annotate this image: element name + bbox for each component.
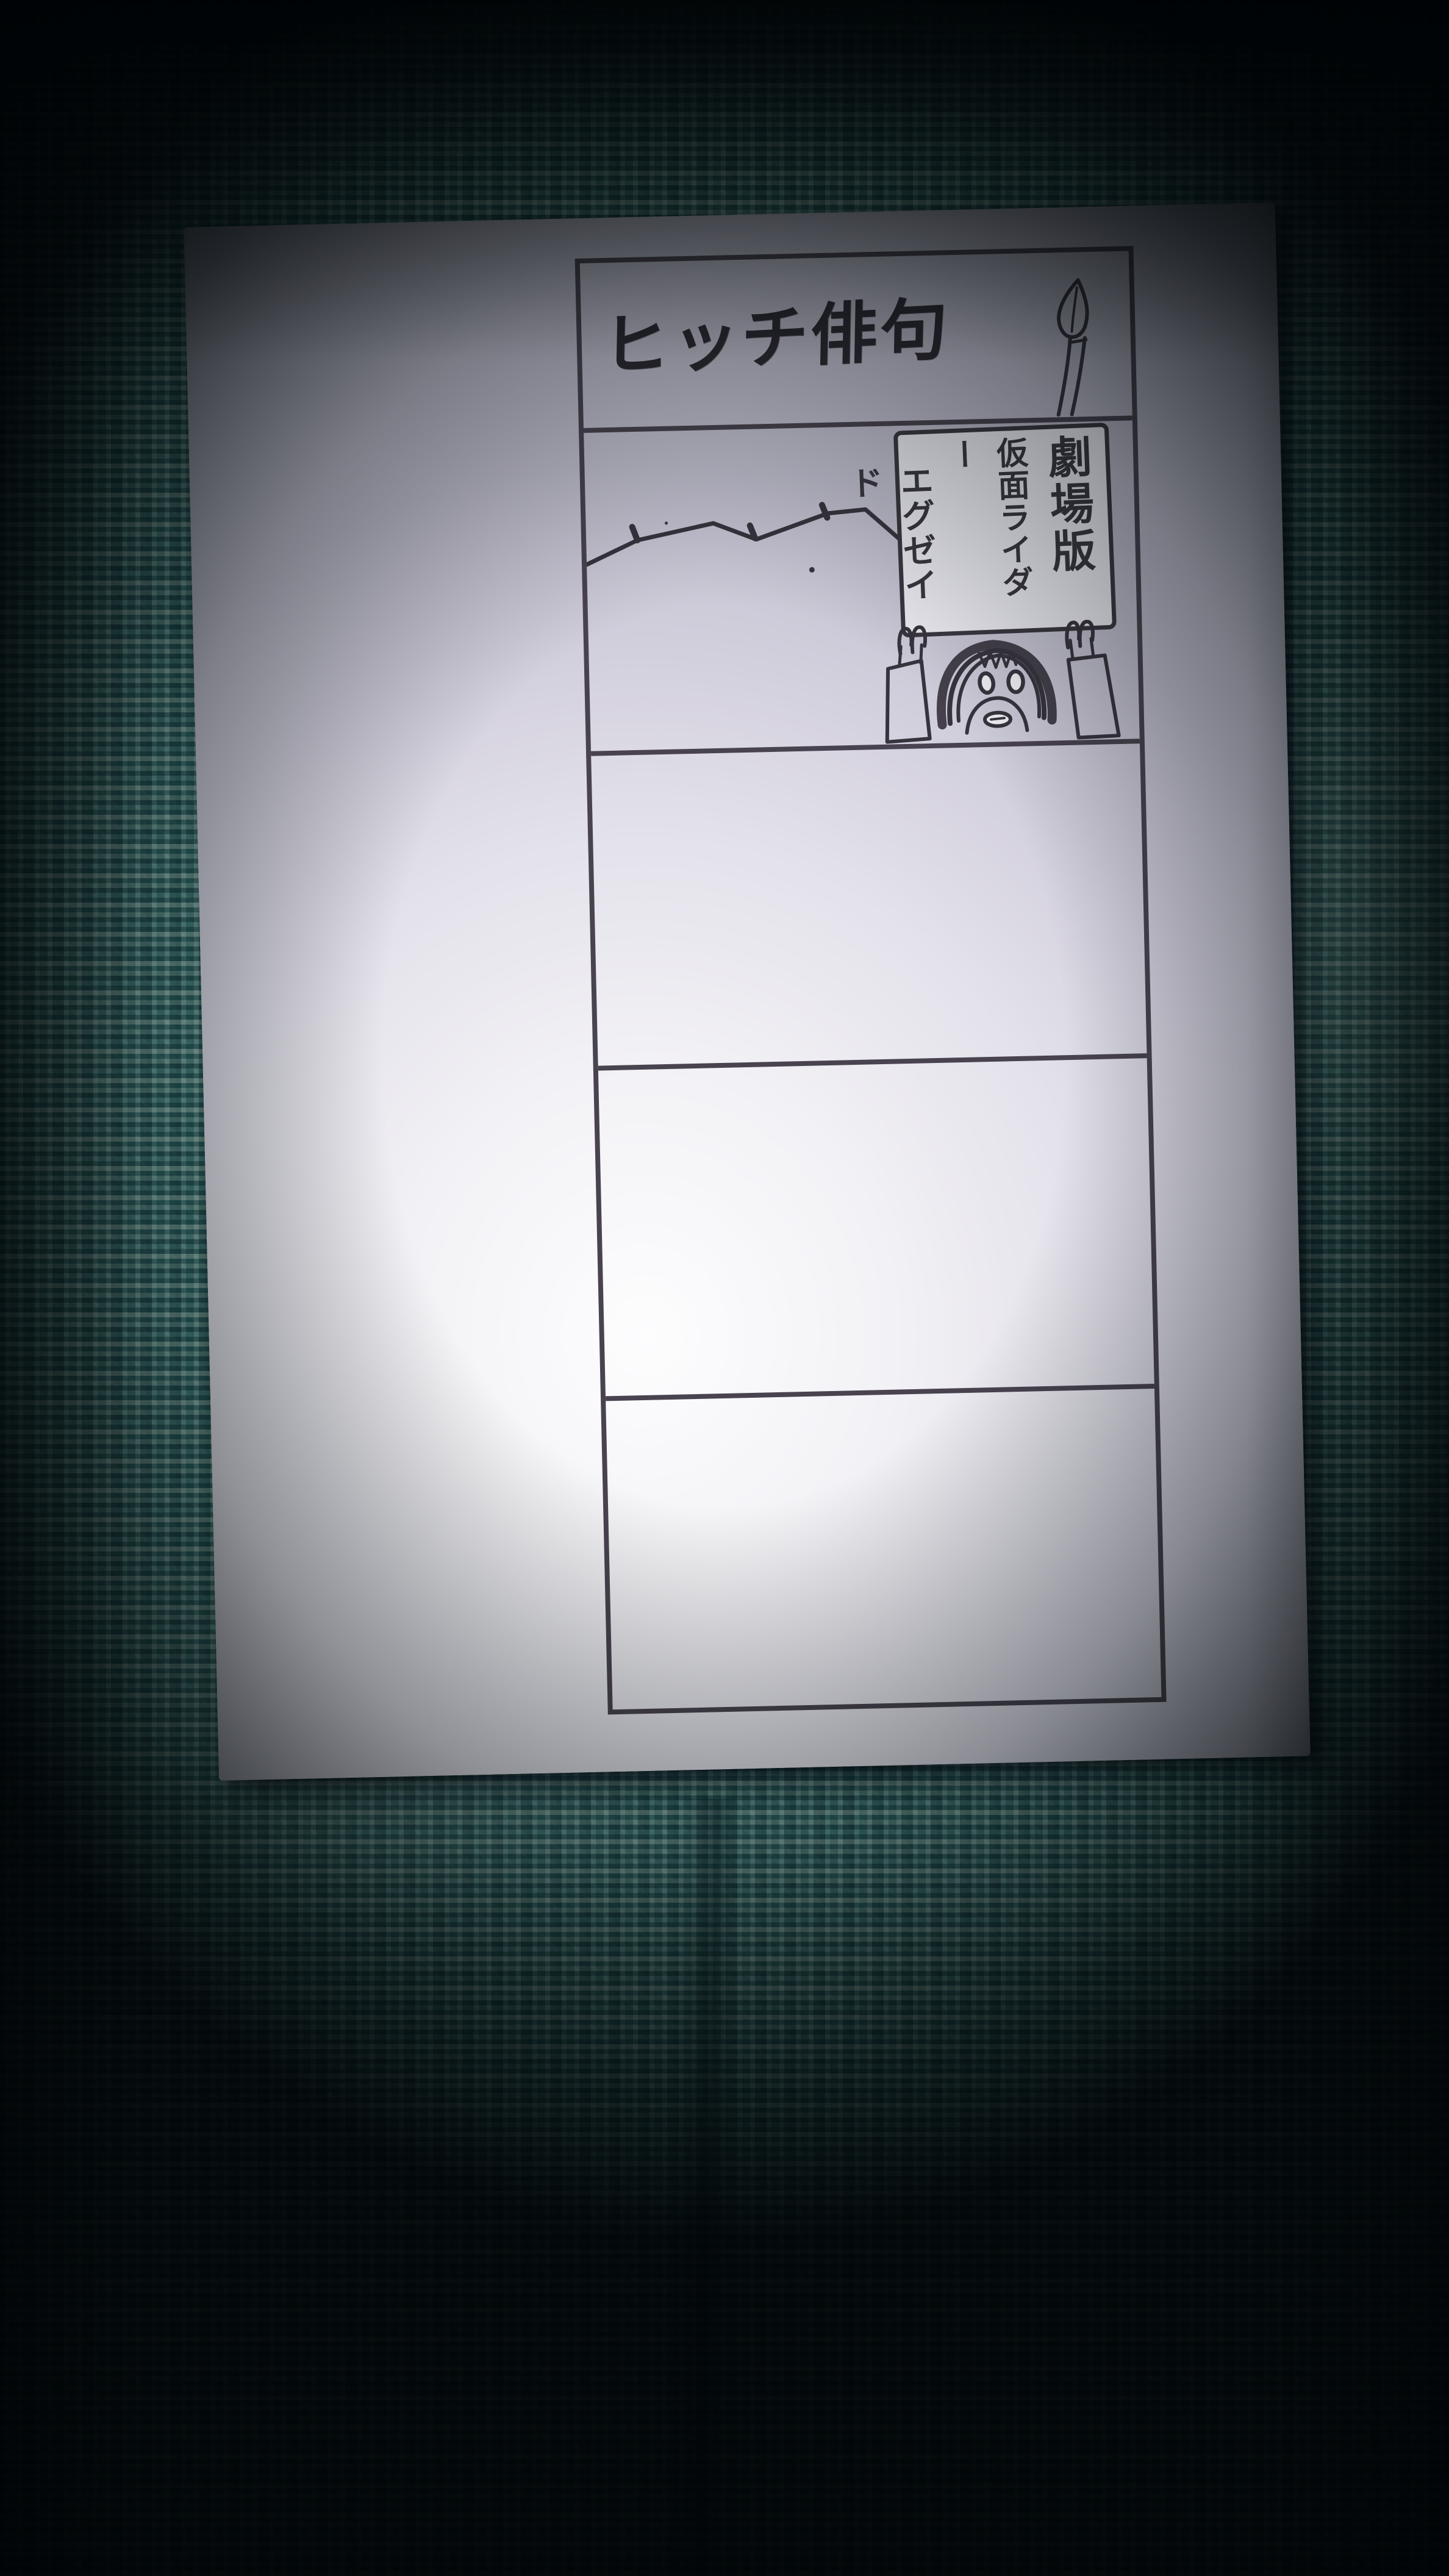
photo-scene: ヒッチ俳句 xyxy=(0,0,1449,2576)
lighting-vignette xyxy=(0,0,1449,2576)
